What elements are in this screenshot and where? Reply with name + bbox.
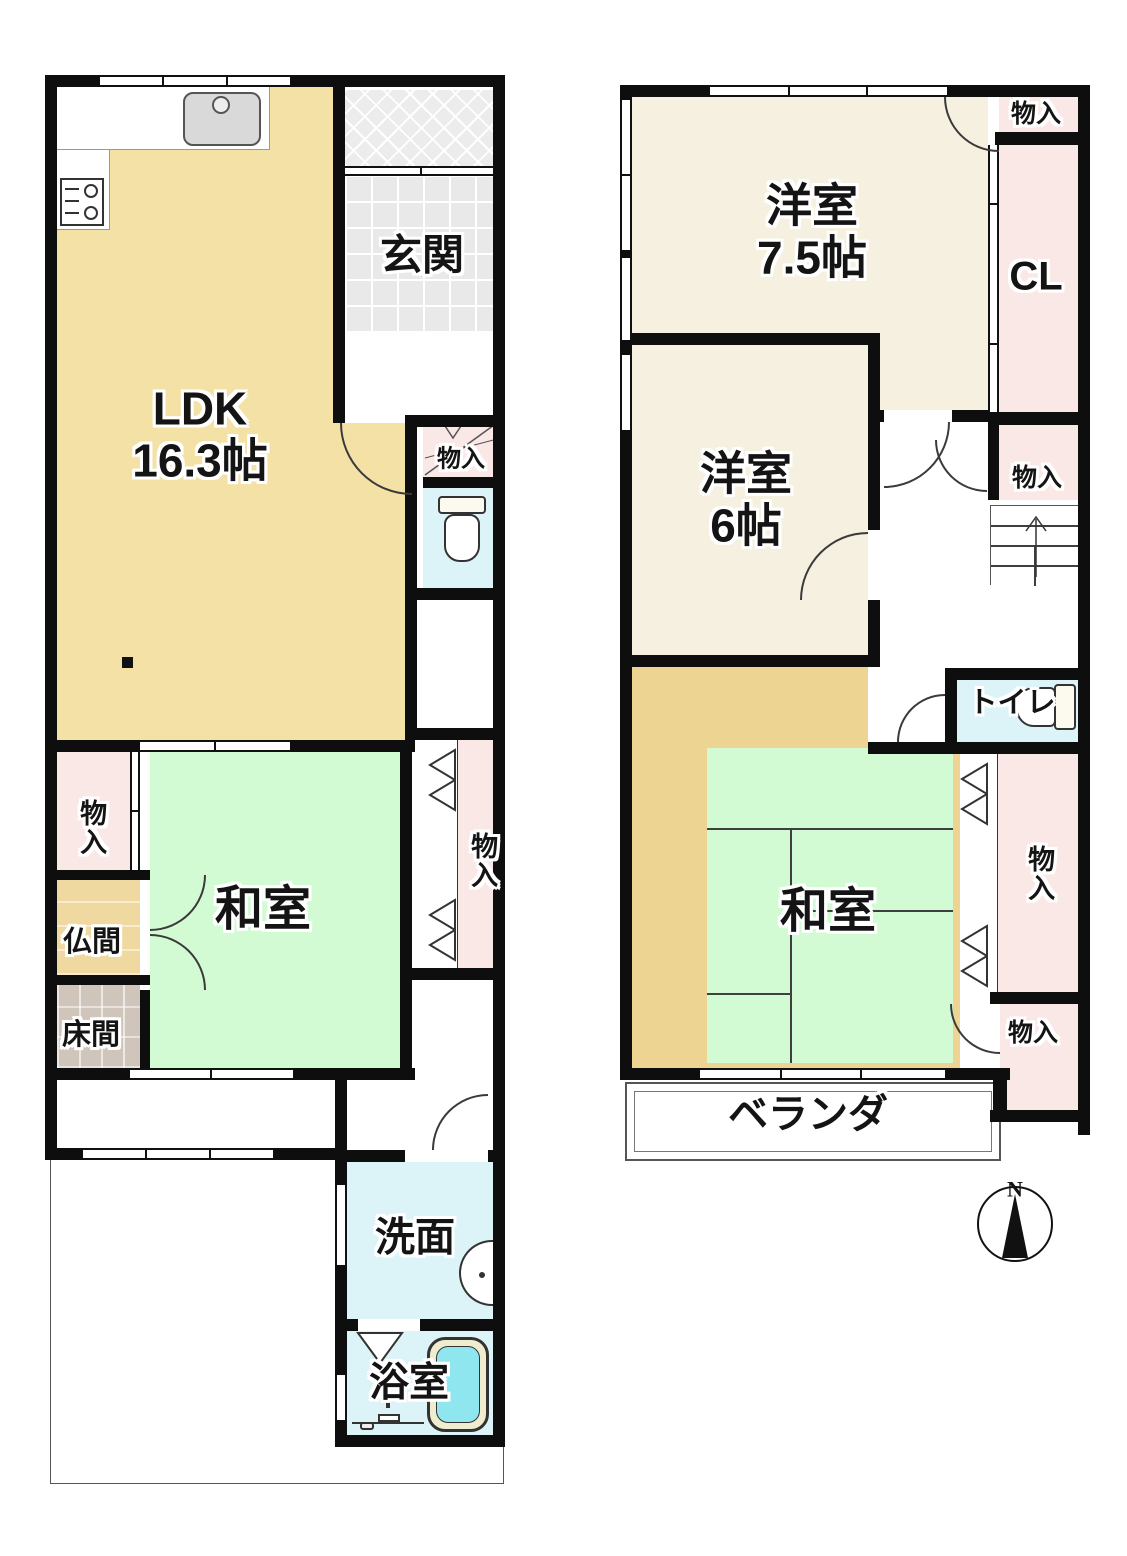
window bbox=[100, 75, 290, 87]
window bbox=[700, 1068, 945, 1080]
room-name: 洋室 bbox=[757, 180, 867, 232]
label-washitsu-1f: 和室 bbox=[215, 883, 311, 937]
wall bbox=[488, 1150, 505, 1162]
label-bathroom: 浴室 bbox=[369, 1361, 449, 1406]
window bbox=[620, 100, 632, 250]
wall bbox=[868, 742, 1090, 754]
floor-plan-canvas: LDK 16.3帖 玄関 物入 物入 仏間 床間 和室 物入 洗面 浴室 bbox=[0, 0, 1127, 1556]
label-senmen: 洗面 bbox=[375, 1216, 455, 1261]
sliding-door bbox=[140, 740, 290, 752]
wall bbox=[423, 477, 505, 488]
label-butsuma: 仏間 bbox=[63, 926, 121, 958]
room-size: 16.3帖 bbox=[132, 435, 268, 487]
label-western-6: 洋室 6帖 bbox=[700, 448, 792, 551]
label-veranda: ベランダ bbox=[728, 1093, 888, 1138]
room-western-75-ext bbox=[880, 333, 988, 410]
label-closet-cl: CL bbox=[1009, 255, 1062, 300]
label-western-75: 洋室 7.5帖 bbox=[757, 180, 867, 283]
wall bbox=[335, 1319, 358, 1331]
label-closet-stairs: 物入 bbox=[1012, 464, 1062, 492]
wall bbox=[990, 1110, 1090, 1122]
window bbox=[620, 355, 632, 430]
wall bbox=[990, 992, 1090, 1004]
window bbox=[130, 1068, 293, 1080]
label-genkan: 玄関 bbox=[380, 231, 464, 278]
folding-door-icon bbox=[960, 762, 988, 826]
window bbox=[710, 85, 947, 97]
label-toilet-2f: トイレ bbox=[968, 687, 1055, 719]
wall bbox=[45, 870, 150, 880]
room-size: 7.5帖 bbox=[757, 232, 867, 284]
wall bbox=[945, 668, 1078, 680]
tatami-line bbox=[707, 828, 953, 830]
entry-porch bbox=[345, 90, 498, 166]
room-name: 洋室 bbox=[700, 448, 792, 500]
window bbox=[335, 1375, 347, 1420]
wall bbox=[45, 975, 150, 985]
label-closet-top: 物入 bbox=[1011, 100, 1061, 128]
wall bbox=[988, 425, 999, 500]
tatami-line bbox=[790, 828, 792, 1063]
window bbox=[335, 1185, 347, 1265]
wall bbox=[620, 655, 880, 667]
wall bbox=[335, 1435, 505, 1447]
compass-north-label: N bbox=[1007, 1178, 1023, 1203]
label-closet-west: 物入 bbox=[76, 799, 106, 857]
wall bbox=[140, 990, 150, 1068]
pillar bbox=[122, 657, 133, 668]
wall bbox=[412, 968, 505, 980]
wall bbox=[945, 668, 957, 743]
wall bbox=[620, 333, 880, 345]
wall bbox=[45, 75, 57, 1160]
wall bbox=[1078, 85, 1090, 1135]
entrance-door bbox=[345, 166, 498, 176]
folding-door-icon bbox=[960, 924, 988, 988]
stairs-up-arrow-icon bbox=[1021, 511, 1051, 581]
room-name: LDK bbox=[132, 383, 268, 435]
folding-door-icon bbox=[428, 748, 456, 812]
label-washitsu-2f: 和室 bbox=[780, 885, 876, 939]
wall bbox=[988, 412, 1090, 425]
wall bbox=[333, 87, 345, 423]
label-closet-southeast: 物入 bbox=[1008, 1019, 1058, 1047]
wall bbox=[420, 1319, 505, 1331]
folding-door-icon bbox=[428, 898, 456, 962]
wall bbox=[493, 75, 505, 1447]
label-tokonoma: 床間 bbox=[62, 1019, 120, 1051]
window bbox=[83, 1148, 273, 1160]
wall bbox=[868, 345, 880, 530]
sliding-door bbox=[988, 145, 999, 412]
wall bbox=[400, 740, 412, 1080]
toilet-bowl-icon bbox=[444, 514, 480, 562]
wall bbox=[995, 132, 1078, 145]
label-closet-east: 物入 bbox=[1024, 845, 1054, 903]
wall bbox=[405, 415, 505, 427]
room-size: 6帖 bbox=[700, 500, 792, 552]
label-closet-hall: 物入 bbox=[467, 832, 497, 890]
label-ldk: LDK 16.3帖 bbox=[132, 383, 268, 486]
kitchen-faucet-icon bbox=[212, 96, 230, 114]
staircase bbox=[990, 505, 1078, 585]
toilet-tank-icon bbox=[1054, 684, 1076, 730]
wall bbox=[335, 1150, 405, 1162]
toilet-tank-icon bbox=[438, 496, 486, 514]
compass: N bbox=[975, 1178, 1055, 1262]
window bbox=[620, 258, 632, 340]
wall bbox=[405, 588, 505, 600]
wall bbox=[412, 728, 505, 740]
label-closet-understairs: 物入 bbox=[437, 447, 485, 474]
sliding-door bbox=[130, 752, 140, 870]
tatami-line bbox=[707, 993, 790, 995]
stove-icon bbox=[60, 178, 104, 226]
